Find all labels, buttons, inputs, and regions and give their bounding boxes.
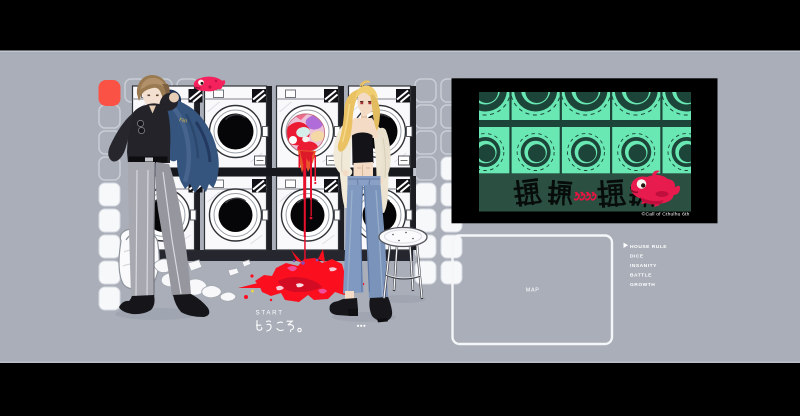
svg-text:©Call of Cthulhu 6th: ©Call of Cthulhu 6th [642,211,690,218]
svg-text:MAP: MAP [526,288,540,294]
svg-text:DICE: DICE [630,253,644,259]
svg-text:HOUSE RULE: HOUSE RULE [630,244,667,250]
svg-text:GROWTH: GROWTH [630,282,655,288]
svg-text:BATTLE: BATTLE [630,273,652,279]
svg-text:START: START [256,310,284,317]
svg-text:INSANITY: INSANITY [630,263,657,269]
